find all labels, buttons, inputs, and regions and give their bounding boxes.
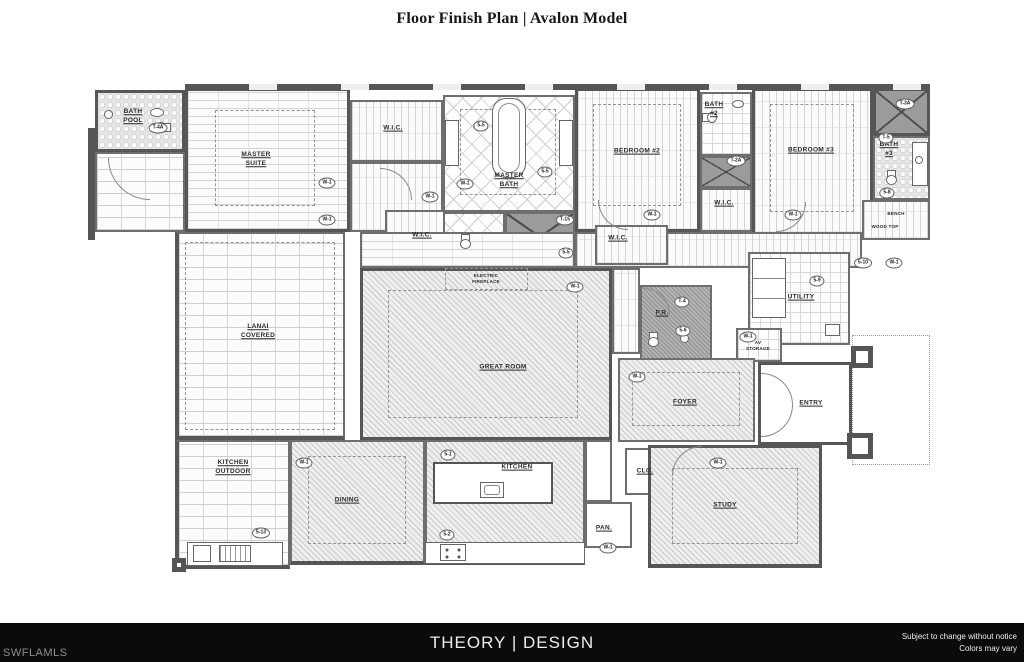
- bathtub-fixture: [492, 98, 526, 178]
- room-label-powder-room: P.R.: [655, 310, 668, 319]
- room-label-utility: UTILITY: [788, 294, 815, 303]
- utility-sink-fixture: [825, 324, 840, 336]
- room-label-master-suite: MASTER SUITE: [241, 151, 270, 169]
- finish-tag: 5-10: [854, 258, 872, 269]
- room-label-entry: ENTRY: [799, 400, 822, 409]
- washer-dryer-fixture: [752, 258, 786, 318]
- ceiling-outline: [770, 104, 854, 212]
- room-label-wic-master-2: W.I.C.: [412, 232, 432, 241]
- vanity-fixture: [445, 120, 459, 166]
- finish-tag: W-1: [599, 543, 616, 554]
- island-sink-fixture: [480, 482, 504, 498]
- room-label-pool-bath: BATH POOL: [123, 108, 143, 126]
- vanity-fixture: [912, 142, 928, 186]
- finish-tag: W-1: [421, 192, 438, 203]
- hall-foyer: [612, 268, 640, 354]
- room-label-master-bath: MASTER BATH: [494, 172, 523, 190]
- room-wic-bedroom-3: [700, 188, 752, 232]
- toilet-fixture: [648, 332, 659, 347]
- room-label-lanai: LANAI COVERED: [241, 323, 275, 341]
- toilet-fixture: [460, 234, 471, 249]
- room-label-wic-bedroom-2: W.I.C.: [608, 235, 628, 244]
- room-label-bedroom-3: BEDROOM #3: [788, 147, 834, 156]
- finish-tag: W-1: [643, 210, 660, 221]
- column-post: [172, 558, 186, 572]
- finish-tag: 5-13: [252, 528, 270, 539]
- label-bench: BENCH: [887, 211, 904, 217]
- finish-tag: W-1: [295, 458, 312, 469]
- brand-theory-design: THEORY | DESIGN: [430, 633, 594, 653]
- ceiling-outline: [388, 290, 578, 418]
- grill-fixture: [219, 545, 251, 562]
- sink-fixture: [150, 108, 164, 117]
- room-label-pantry: PAN.: [596, 525, 612, 534]
- label-wood-top: WOOD TOP: [871, 224, 898, 230]
- kitchen-tall-cabinets: [585, 440, 612, 502]
- sink-fixture: [732, 100, 744, 108]
- footer-disclaimer: Subject to change without notice Colors …: [902, 631, 1017, 655]
- room-label-bath-2: BATH #2: [705, 101, 724, 119]
- vanity-fixture: [559, 120, 573, 166]
- floor-plan: BATH POOL MASTER SUITE W.I.C. W.I.C. MAS…: [88, 84, 930, 572]
- finish-tag: W-1: [739, 332, 756, 343]
- sink-fixture: [915, 156, 923, 164]
- disclaimer-line-1: Subject to change without notice: [902, 631, 1017, 643]
- finish-tag: W-1: [885, 258, 902, 269]
- room-bench-nook: [862, 200, 930, 240]
- room-label-bath-3: BATH #3: [880, 141, 899, 159]
- finish-tag: W-1: [318, 178, 335, 189]
- exterior-wall-top: [185, 84, 930, 90]
- finish-tag: W-1: [566, 282, 583, 293]
- finish-tag: T-15: [556, 215, 574, 226]
- room-label-dining: DINING: [335, 497, 360, 506]
- room-label-wic-bedroom-3: W.I.C.: [714, 200, 734, 209]
- finish-tag: W-1: [318, 215, 335, 226]
- watermark-swflamls: SWFLAMLS: [3, 647, 68, 659]
- finish-tag: W-1: [456, 179, 473, 190]
- room-label-wic-master-1: W.I.C.: [383, 125, 403, 134]
- label-electric-fireplace: ELECTRIC FIREPLACE: [472, 273, 500, 285]
- exterior-wall-stub: [88, 128, 95, 240]
- footer-bar: SWFLAMLS THEORY | DESIGN Subject to chan…: [0, 623, 1024, 662]
- room-label-closet: CLO.: [637, 468, 654, 477]
- disclaimer-line-2: Colors may vary: [902, 643, 1017, 655]
- room-wic-bedroom-2: [595, 225, 668, 265]
- finish-tag: W-1: [784, 210, 801, 221]
- finish-tag: T-3A: [896, 99, 915, 110]
- finish-tag: W-1: [709, 458, 726, 469]
- room-shower-3: [873, 88, 930, 136]
- column-post: [847, 433, 873, 459]
- page-title: Floor Finish Plan | Avalon Model: [0, 10, 1024, 28]
- shower-head-icon: [104, 110, 113, 119]
- outdoor-cabinet: [193, 545, 211, 562]
- room-label-study: STUDY: [713, 502, 737, 511]
- room-label-outdoor-kitchen: KITCHEN OUTDOOR: [215, 459, 250, 477]
- finish-tag: W-1: [628, 372, 645, 383]
- room-label-kitchen: KITCHEN: [502, 464, 533, 473]
- room-label-great-room: GREAT ROOM: [479, 364, 526, 373]
- column-post: [851, 346, 873, 368]
- range-fixture: [440, 544, 466, 561]
- finish-tag: T-2A: [727, 156, 746, 167]
- room-label-bedroom-2: BEDROOM #2: [614, 148, 660, 157]
- room-label-foyer: FOYER: [673, 399, 697, 408]
- toilet-fixture: [886, 170, 897, 185]
- finish-tag: T-4A: [149, 123, 168, 134]
